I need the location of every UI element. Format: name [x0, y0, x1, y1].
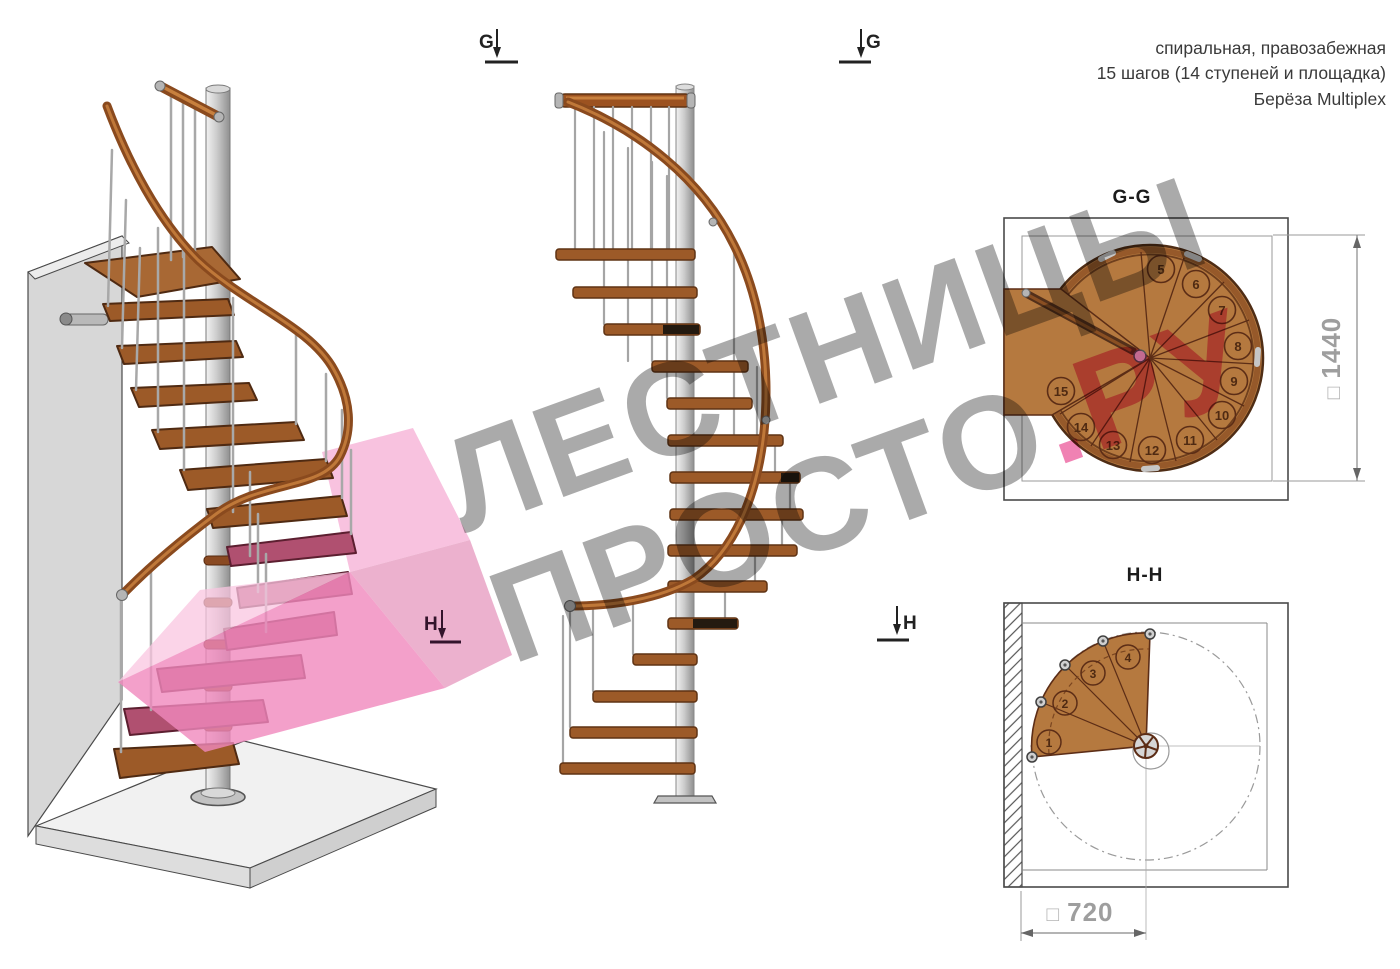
svg-text:7: 7 [1218, 303, 1225, 318]
section-marker-h-right: H [877, 606, 917, 640]
svg-text:15: 15 [1054, 384, 1068, 399]
svg-text:12: 12 [1145, 443, 1159, 458]
svg-text:6: 6 [1192, 277, 1199, 292]
section-plane-front [118, 540, 512, 752]
svg-text:9: 9 [1230, 374, 1237, 389]
plan-view-hh: H-H [1004, 565, 1288, 941]
wall-bracket [60, 313, 108, 325]
marker-h-left-label: H [424, 614, 438, 635]
plan-view-gg: G-G [1004, 187, 1365, 500]
plan-gg-title: G-G [1113, 187, 1152, 208]
wall-front [28, 236, 122, 836]
gg-dimension: □1440 [1273, 235, 1365, 481]
svg-text:4: 4 [1125, 651, 1132, 665]
section-marker-g-right: G [839, 29, 881, 62]
view-3d: H [28, 81, 512, 888]
marker-g-right-label: G [866, 32, 881, 53]
drawing-page: H [0, 0, 1400, 969]
section-marker-g-left: G [479, 29, 518, 62]
hh-wall-hatch [1004, 603, 1022, 887]
svg-text:10: 10 [1215, 408, 1229, 423]
spec-type: спиральная, правозабежная [1097, 36, 1386, 61]
svg-text:5: 5 [1157, 262, 1164, 277]
view-elevation [555, 84, 803, 803]
staircase-drawing-canvas: H [0, 0, 1400, 969]
svg-text:13: 13 [1106, 438, 1120, 453]
gg-dimension-label: □1440 [1316, 317, 1346, 400]
title-block: спиральная, правозабежная 15 шагов (14 с… [1097, 36, 1386, 112]
svg-text:2: 2 [1062, 697, 1069, 711]
steps-elevation [556, 249, 803, 774]
hh-center-pole-detail [1133, 733, 1169, 769]
svg-text:14: 14 [1074, 420, 1089, 435]
marker-h-right-label: H [903, 613, 917, 634]
svg-text:8: 8 [1234, 339, 1241, 354]
hh-dimension: □720 [1021, 891, 1146, 941]
marker-g-left-label: G [479, 32, 494, 53]
plan-hh-title: H-H [1127, 565, 1164, 586]
svg-text:11: 11 [1183, 433, 1197, 448]
spec-steps: 15 шагов (14 ступеней и площадка) [1097, 61, 1386, 86]
hh-dimension-label: □720 [1046, 897, 1113, 927]
gg-stair-circle: 5 6 7 8 9 10 11 12 13 14 15 [1004, 245, 1263, 471]
spec-material: Берёза Multiplex [1097, 87, 1386, 112]
hh-crosshair [1030, 746, 1260, 940]
svg-text:3: 3 [1090, 667, 1097, 681]
svg-text:1: 1 [1046, 736, 1053, 750]
